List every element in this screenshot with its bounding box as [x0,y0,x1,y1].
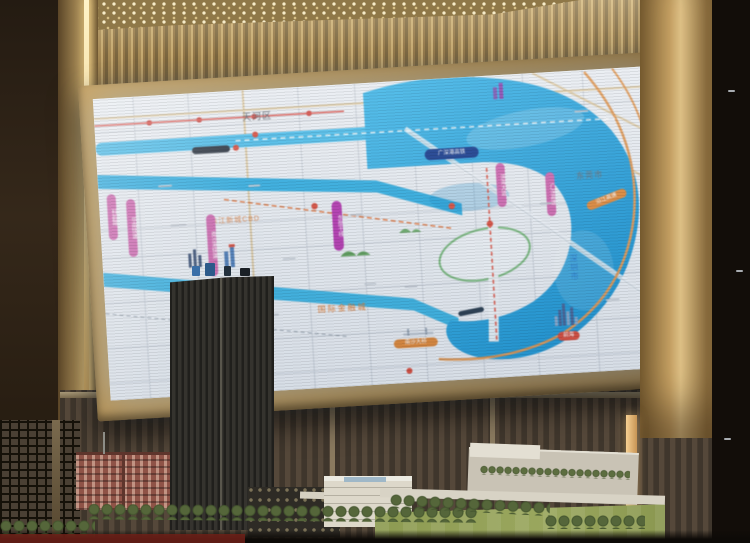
tower-center-mullion [220,276,222,530]
led-screen-gold-frame: 天河区 东莞市 深圳市 国际金融城 珠江新城CBD 广深港高铁 南沙大桥 沿江高… [78,51,689,422]
glass-glint [728,90,735,92]
rooftop-equipment [205,263,215,276]
model-tree-row [545,515,645,529]
right-gold-pillar [640,0,714,438]
model-antenna [103,432,105,454]
glass-glint [724,438,731,440]
model-plaza-buildings [470,443,540,459]
district-label-tianhe: 天河区 [242,109,273,124]
floor-red-strip [0,534,245,543]
rooftop-equipment [224,266,231,276]
rooftop-equipment [192,266,200,276]
model-brick-divider [122,452,125,507]
city-label-dongguan: 东莞市 [576,169,604,182]
glass-glint [736,270,743,272]
city-label-shenzhen: 深圳市 [568,254,581,282]
showroom-scene: 天河区 东莞市 深圳市 国际金融城 珠江新城CBD 广深港高铁 南沙大桥 沿江高… [0,0,750,543]
right-dark-edge [712,0,750,543]
model-podium-roof [344,477,386,482]
rooftop-equipment [240,268,250,276]
area-capsule-qianhai: 前海 [557,331,579,341]
